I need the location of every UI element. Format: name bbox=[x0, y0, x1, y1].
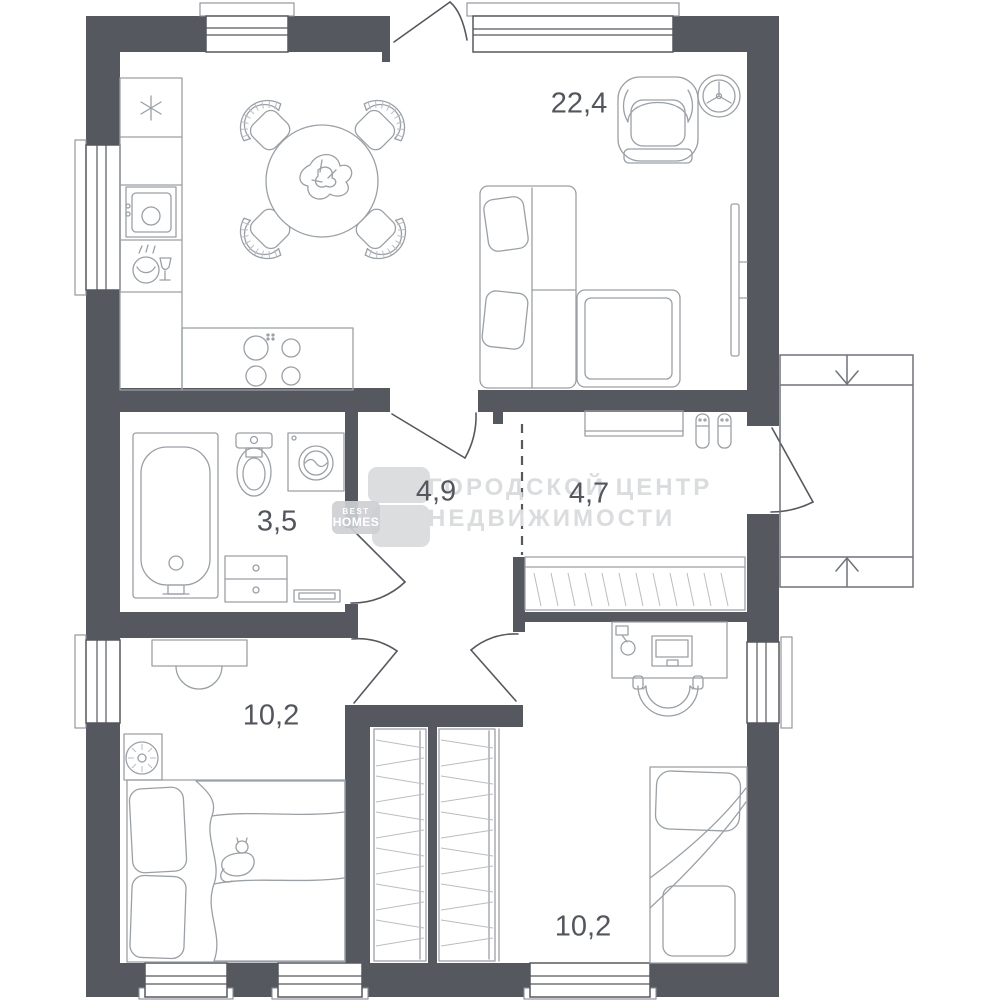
stove bbox=[244, 334, 300, 386]
shoe-shelf bbox=[585, 411, 683, 436]
wardrobe-left bbox=[374, 729, 426, 961]
pillow bbox=[655, 771, 741, 832]
double-bed bbox=[127, 780, 345, 962]
tv bbox=[731, 204, 747, 356]
bathtub bbox=[133, 433, 218, 598]
window-kitchen-left bbox=[86, 145, 120, 290]
room-area-bedroom-left: 10,2 bbox=[243, 700, 299, 733]
logo-brand-box: BEST HOMES bbox=[332, 501, 380, 534]
window-bedroom-right-side bbox=[747, 642, 779, 723]
desk-chair bbox=[633, 676, 703, 716]
shoes-icon bbox=[696, 414, 731, 448]
window-sill bbox=[75, 140, 86, 295]
blanket bbox=[196, 781, 345, 961]
arrow-up-icon bbox=[836, 558, 858, 586]
fan-icon bbox=[124, 734, 162, 780]
kitchen-sink bbox=[126, 187, 176, 237]
desk-lamp bbox=[616, 626, 628, 635]
window-sill bbox=[781, 637, 792, 728]
room-area-hallway: 4,9 bbox=[416, 476, 456, 509]
window-sill bbox=[200, 3, 294, 16]
room-area-bathroom: 3,5 bbox=[257, 506, 297, 539]
door-entrance bbox=[771, 428, 813, 512]
window-bedroom-left-side bbox=[86, 640, 120, 723]
living-room bbox=[480, 75, 747, 388]
door-bedroom-right bbox=[471, 634, 518, 701]
window-bedroom-left-bottom-2 bbox=[278, 963, 362, 997]
kitchen-counter bbox=[120, 78, 182, 390]
door-bedroom-left bbox=[352, 639, 397, 703]
logo-text-bottom: HOMES bbox=[333, 516, 380, 528]
arrow-down-icon bbox=[836, 356, 858, 384]
room-area-entry-hall: 4,7 bbox=[569, 478, 609, 511]
logo-square bbox=[372, 505, 430, 547]
dining-table bbox=[266, 125, 378, 237]
dresser bbox=[152, 640, 247, 689]
sofa bbox=[480, 186, 680, 388]
window-sill bbox=[75, 635, 86, 728]
bedroom-left bbox=[124, 640, 345, 962]
bedroom-right bbox=[612, 622, 747, 963]
window-sill bbox=[467, 3, 679, 16]
dishwasher-icon bbox=[133, 245, 171, 283]
blanket-fold bbox=[650, 788, 746, 878]
kitchen-counter-bottom bbox=[182, 328, 353, 390]
window-living-top bbox=[473, 16, 673, 52]
bathroom-cabinet bbox=[225, 556, 287, 602]
bathroom bbox=[133, 433, 344, 602]
door-terrace bbox=[394, 2, 467, 42]
sofa-ottoman bbox=[577, 290, 680, 387]
cat-icon bbox=[221, 838, 254, 882]
desk bbox=[612, 622, 727, 678]
toilet bbox=[236, 433, 272, 496]
hall-wardrobe bbox=[525, 557, 745, 610]
porch bbox=[780, 355, 913, 587]
floor-plan-page: ГОРОДСКОЙ ЦЕНТР НЕДВИЖИМОСТИ BEST HOMES … bbox=[0, 0, 1000, 1000]
room-area-living: 22,4 bbox=[551, 88, 607, 121]
wall-clock-icon bbox=[698, 75, 740, 117]
bath-mat bbox=[294, 590, 340, 602]
fridge-icon bbox=[141, 96, 161, 120]
window-bedroom-left-bottom-1 bbox=[145, 963, 227, 997]
window-kitchen-top bbox=[206, 16, 288, 52]
dining-set bbox=[230, 90, 416, 269]
pillow bbox=[129, 787, 187, 874]
room-area-bedroom-right: 10,2 bbox=[555, 911, 611, 944]
window-bedroom-right-bottom bbox=[530, 963, 650, 997]
pillow bbox=[130, 875, 187, 959]
single-bed bbox=[650, 767, 747, 963]
door-living-to-hall bbox=[392, 413, 476, 458]
wardrobe-right bbox=[439, 729, 499, 961]
watermark-line-2: НЕДВИЖИМОСТИ bbox=[428, 503, 675, 534]
armchair bbox=[618, 77, 698, 163]
